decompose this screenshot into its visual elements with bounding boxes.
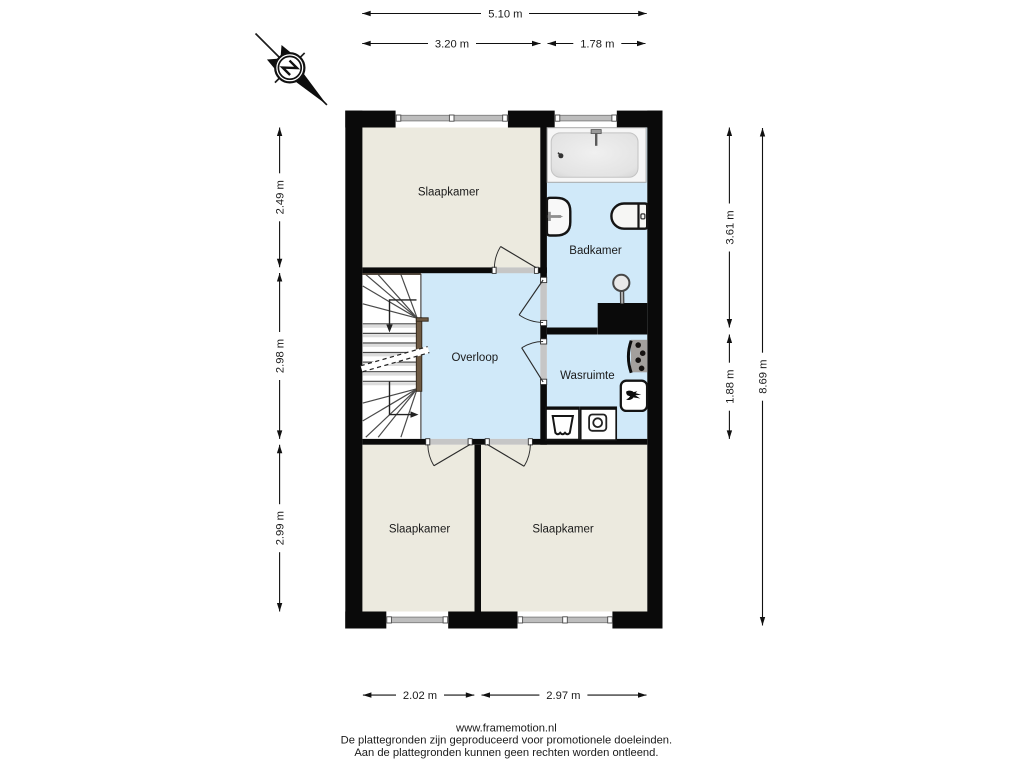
svg-text:De plattegronden zijn geproduc: De plattegronden zijn geproduceerd voor … — [341, 735, 673, 747]
svg-text:3.61 m: 3.61 m — [724, 210, 736, 244]
svg-text:3.20 m: 3.20 m — [435, 38, 469, 50]
svg-text:1.78 m: 1.78 m — [580, 38, 614, 50]
svg-text:2.02 m: 2.02 m — [403, 690, 437, 702]
svg-text:2.99 m: 2.99 m — [275, 511, 287, 545]
svg-text:1.88 m: 1.88 m — [724, 370, 736, 404]
svg-text:8.69 m: 8.69 m — [757, 360, 769, 394]
svg-text:2.49 m: 2.49 m — [275, 180, 287, 214]
svg-text:Aan de plattegronden kunnen ge: Aan de plattegronden kunnen geen rechten… — [354, 747, 658, 759]
svg-text:Slaapkamer: Slaapkamer — [389, 524, 451, 536]
svg-text:Slaapkamer: Slaapkamer — [418, 186, 480, 198]
svg-text:2.97 m: 2.97 m — [546, 690, 580, 702]
svg-text:2.98 m: 2.98 m — [275, 339, 287, 373]
svg-text:Overloop: Overloop — [451, 352, 498, 364]
svg-text:Slaapkamer: Slaapkamer — [532, 524, 594, 536]
svg-text:Wasruimte: Wasruimte — [560, 370, 615, 382]
svg-text:Badkamer: Badkamer — [569, 245, 622, 257]
svg-text:5.10 m: 5.10 m — [488, 8, 522, 20]
svg-text:www.framemotion.nl: www.framemotion.nl — [455, 722, 557, 734]
